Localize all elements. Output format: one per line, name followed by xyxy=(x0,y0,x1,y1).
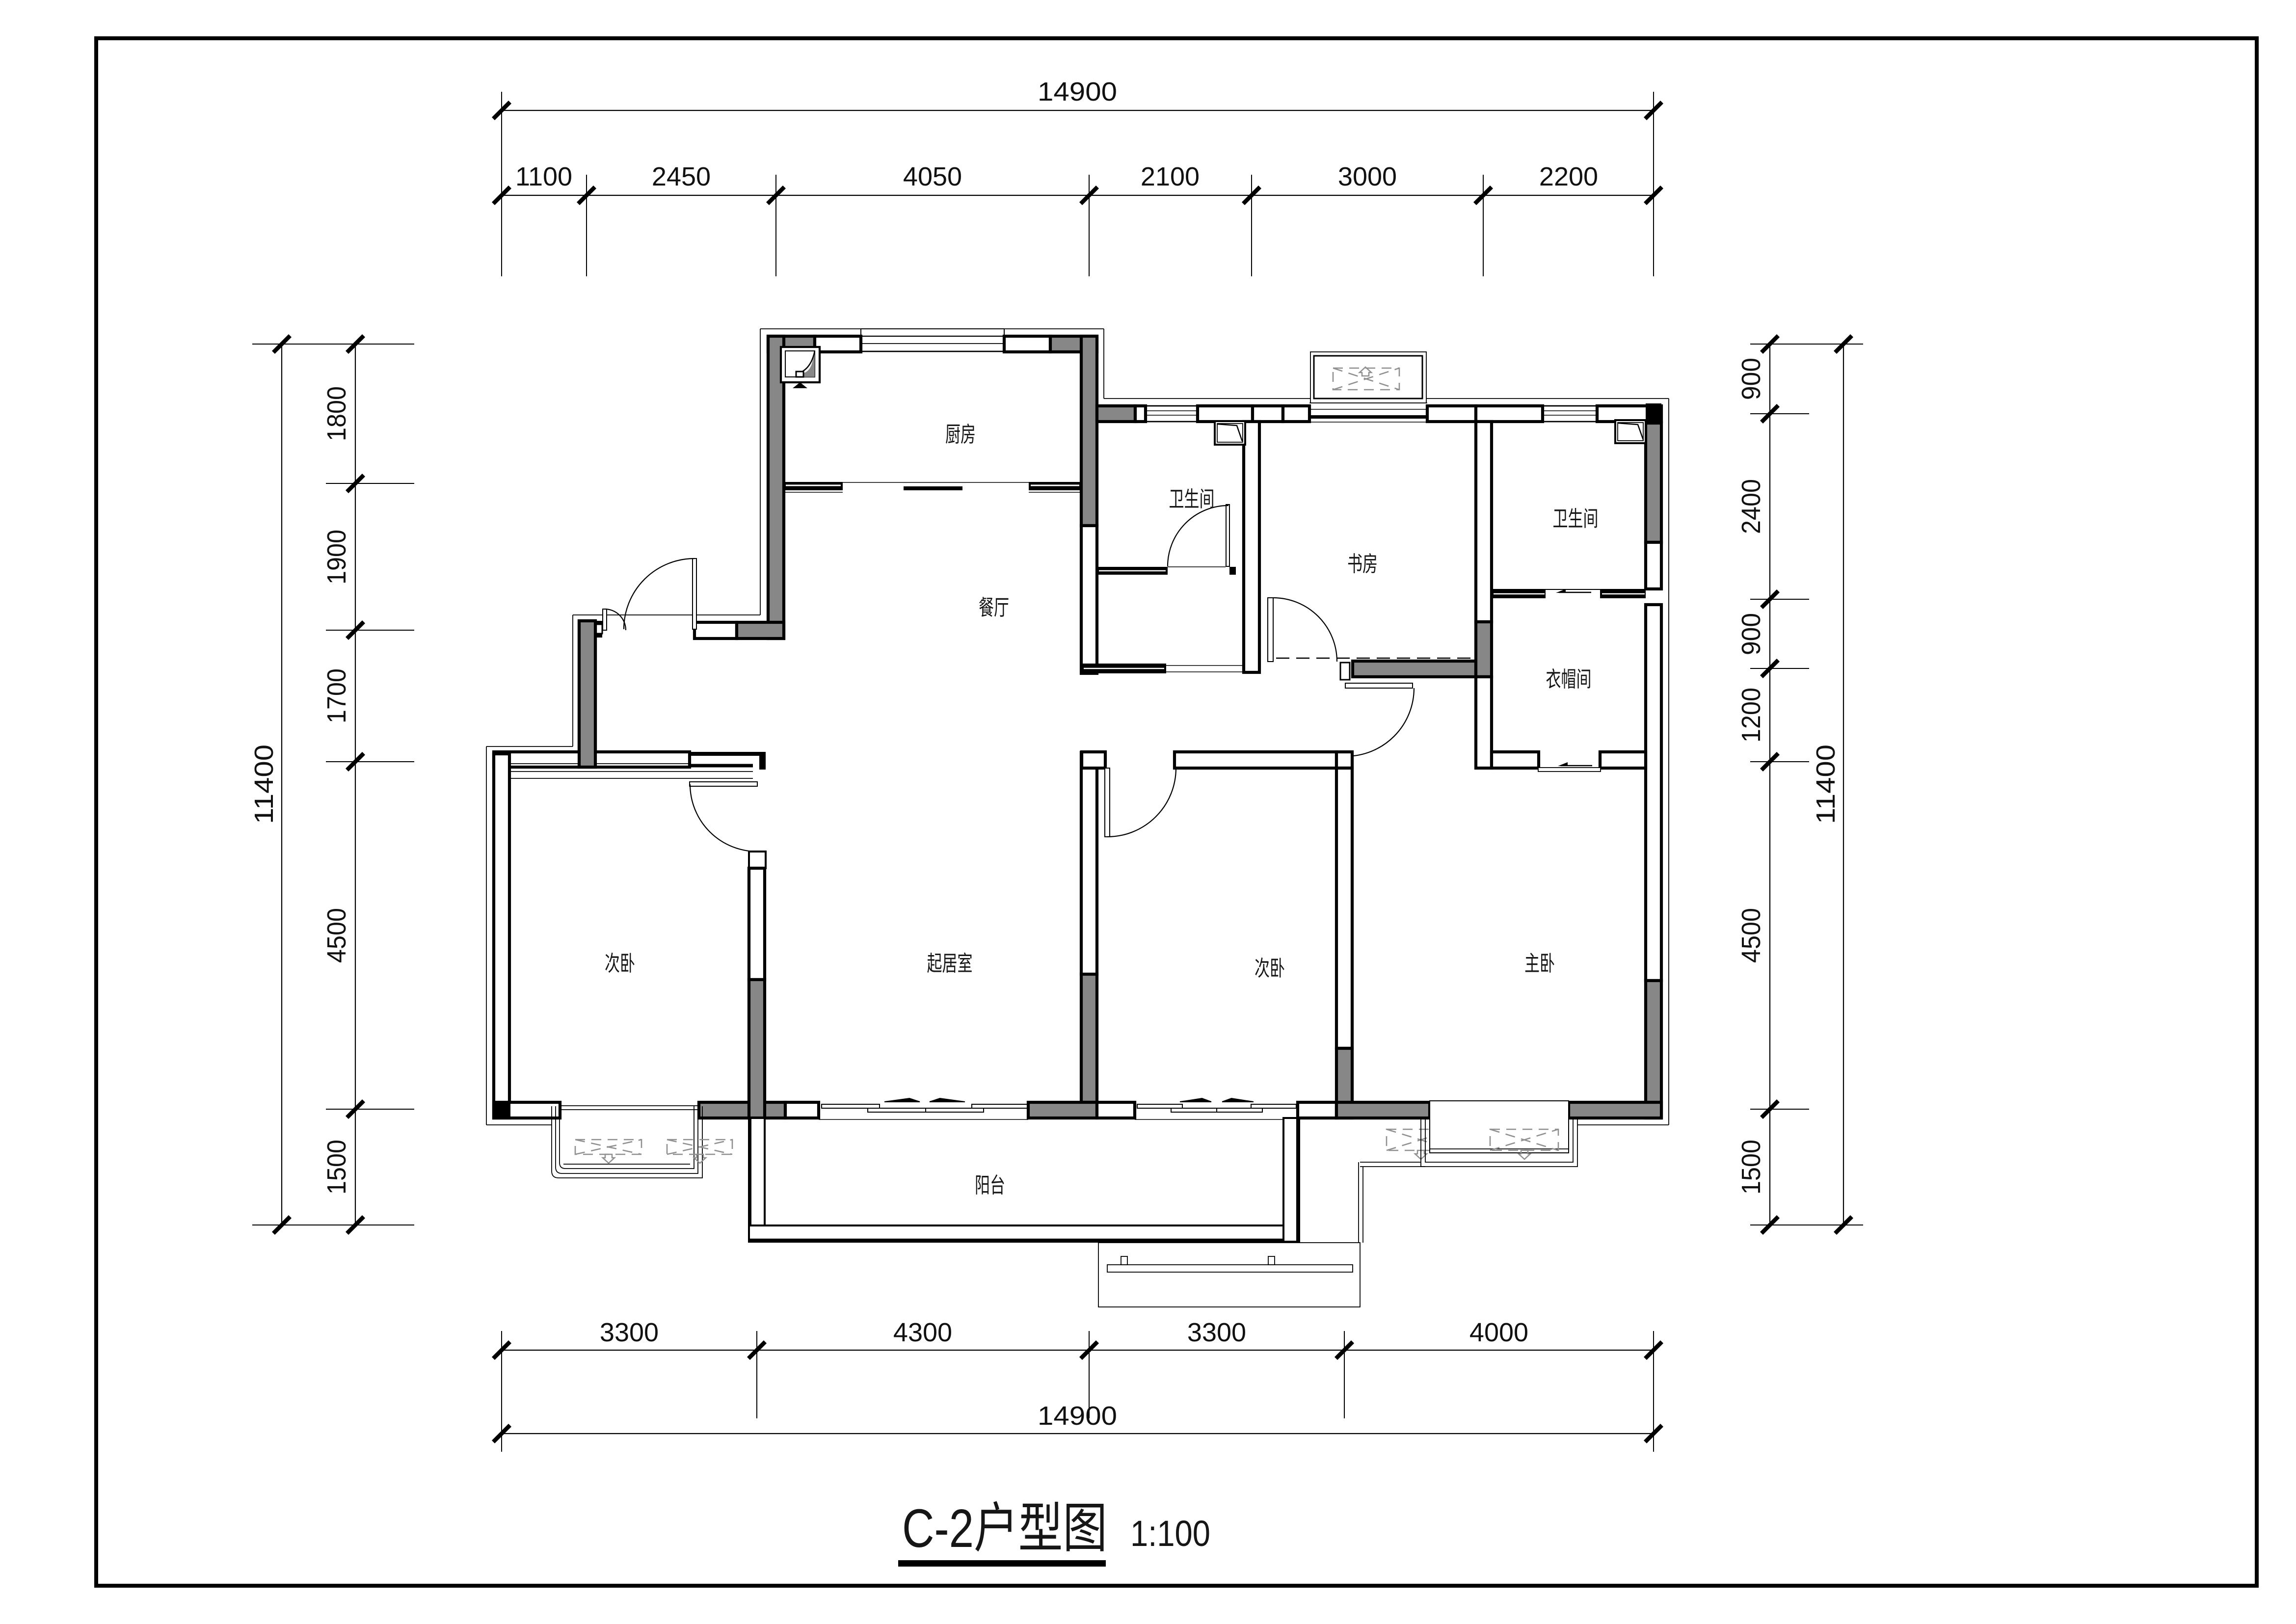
svg-text:3300: 3300 xyxy=(1187,1318,1246,1347)
svg-text:900: 900 xyxy=(1736,613,1766,655)
svg-text:2200: 2200 xyxy=(1539,162,1598,191)
svg-text:2400: 2400 xyxy=(1736,479,1766,534)
svg-text:14900: 14900 xyxy=(1038,77,1117,106)
svg-text:11400: 11400 xyxy=(1811,745,1841,824)
svg-text:1:100: 1:100 xyxy=(1130,1513,1210,1554)
svg-text:主卧: 主卧 xyxy=(1524,952,1555,976)
svg-text:4300: 4300 xyxy=(893,1318,952,1347)
svg-text:3300: 3300 xyxy=(600,1318,659,1347)
svg-text:11400: 11400 xyxy=(249,745,279,824)
svg-text:餐厅: 餐厅 xyxy=(979,596,1009,620)
svg-text:卫生间: 卫生间 xyxy=(1169,487,1215,511)
svg-text:900: 900 xyxy=(1736,358,1766,400)
svg-text:14900: 14900 xyxy=(1038,1401,1117,1431)
svg-text:4500: 4500 xyxy=(322,908,351,963)
svg-text:1200: 1200 xyxy=(1736,688,1766,743)
svg-text:衣帽间: 衣帽间 xyxy=(1546,667,1592,692)
svg-text:2100: 2100 xyxy=(1141,162,1200,191)
svg-text:阳台: 阳台 xyxy=(975,1173,1005,1198)
svg-text:起居室: 起居室 xyxy=(927,952,973,976)
svg-text:1500: 1500 xyxy=(1736,1140,1766,1195)
svg-text:1800: 1800 xyxy=(322,386,351,441)
svg-text:1700: 1700 xyxy=(322,668,351,723)
svg-text:C-2户型图: C-2户型图 xyxy=(902,1498,1107,1559)
svg-text:4050: 4050 xyxy=(903,162,962,191)
svg-text:3000: 3000 xyxy=(1338,162,1397,191)
svg-text:次卧: 次卧 xyxy=(1255,957,1285,981)
svg-text:4000: 4000 xyxy=(1469,1318,1528,1347)
svg-text:1100: 1100 xyxy=(515,162,572,191)
svg-text:1500: 1500 xyxy=(322,1140,351,1195)
svg-text:4500: 4500 xyxy=(1736,908,1766,963)
svg-text:2450: 2450 xyxy=(652,162,711,191)
svg-text:次卧: 次卧 xyxy=(605,952,635,976)
svg-text:卫生间: 卫生间 xyxy=(1553,507,1599,531)
svg-text:书房: 书房 xyxy=(1347,552,1378,576)
svg-text:1900: 1900 xyxy=(322,530,351,585)
svg-text:厨房: 厨房 xyxy=(945,423,976,447)
